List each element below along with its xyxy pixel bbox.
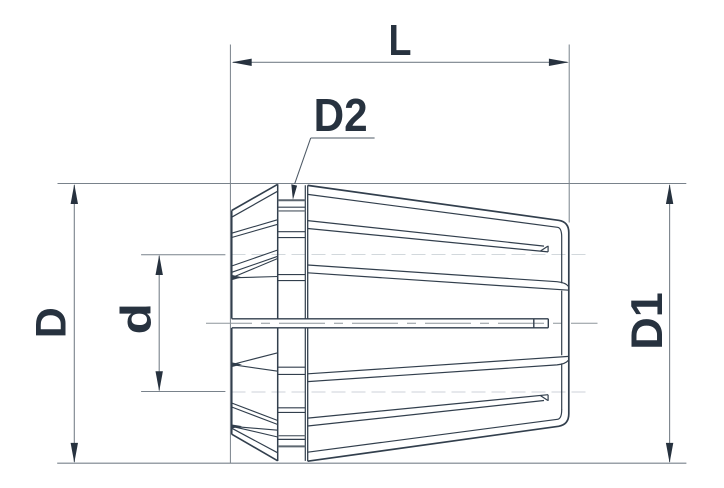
svg-text:D1: D1 — [623, 292, 672, 350]
svg-text:d: d — [113, 303, 161, 335]
svg-text:D2: D2 — [314, 89, 368, 141]
svg-text:L: L — [389, 16, 412, 65]
svg-text:D: D — [28, 307, 76, 338]
